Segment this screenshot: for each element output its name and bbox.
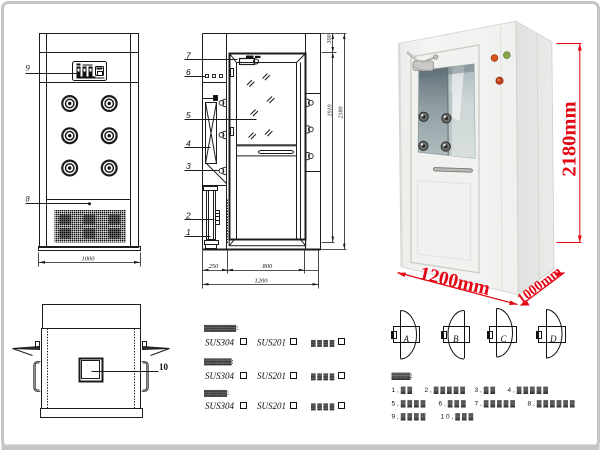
svg-text:10: 10 [159, 362, 169, 372]
svg-text:SUS201: SUS201 [257, 401, 286, 411]
svg-text:SUS304: SUS304 [205, 338, 234, 348]
svg-text:5,▓▓▓▓: 5,▓▓▓▓ [392, 400, 428, 408]
svg-text:▓▓▓▓: ▓▓▓▓ [311, 339, 336, 347]
svg-text:6: 6 [186, 67, 191, 77]
svg-text:1: 1 [186, 227, 191, 237]
svg-text:250: 250 [209, 263, 220, 270]
svg-text:▓▓▓▓: ▓▓▓▓ [311, 373, 336, 381]
svg-text:SUS304: SUS304 [205, 371, 234, 381]
svg-text:B: B [453, 334, 459, 344]
svg-text:3: 3 [186, 161, 191, 171]
svg-text:D: D [549, 334, 557, 344]
svg-text:3,▓▓: 3,▓▓ [475, 386, 498, 394]
svg-text:9,▓▓▓▓: 9,▓▓▓▓ [392, 413, 428, 421]
svg-text:300: 300 [327, 35, 333, 45]
svg-text:1000: 1000 [82, 255, 96, 262]
svg-text:▓▓▓▓▓▓▓:: ▓▓▓▓▓▓▓: [204, 324, 238, 332]
svg-text:6,▓▓▓: 6,▓▓▓ [439, 400, 468, 408]
svg-text:A: A [403, 334, 410, 344]
svg-text:▓▓▓▓▓▓:: ▓▓▓▓▓▓: [204, 358, 234, 366]
svg-text:▓▓▓▓: ▓▓▓▓ [311, 403, 336, 411]
svg-text:2180mm: 2180mm [558, 101, 580, 176]
svg-text:1,▓▓: 1,▓▓ [392, 386, 415, 394]
svg-text:5: 5 [186, 110, 191, 120]
svg-text:SUS304: SUS304 [205, 401, 234, 411]
svg-text:1910: 1910 [327, 105, 333, 117]
svg-text:8,▓▓▓▓▓▓: 8,▓▓▓▓▓▓ [528, 400, 577, 408]
svg-text:7: 7 [186, 51, 191, 61]
svg-text:2180: 2180 [339, 107, 345, 119]
svg-text:1200: 1200 [255, 277, 269, 284]
svg-text:SUS201: SUS201 [257, 338, 286, 348]
svg-text:▓▓▓▓:: ▓▓▓▓: [392, 372, 413, 380]
svg-text:2,▓▓▓▓▓: 2,▓▓▓▓▓ [425, 386, 467, 394]
svg-text:7,▓▓▓▓▓: 7,▓▓▓▓▓ [475, 400, 517, 408]
svg-text:10,▓▓▓: 10,▓▓▓ [441, 413, 476, 421]
svg-text:4,▓▓▓▓▓: 4,▓▓▓▓▓ [508, 386, 550, 394]
svg-text:4: 4 [186, 139, 191, 149]
svg-text:2: 2 [185, 211, 191, 221]
svg-text:800: 800 [263, 263, 274, 270]
svg-text:▓▓▓▓▓:: ▓▓▓▓▓: [204, 389, 229, 397]
svg-text:C: C [501, 334, 508, 344]
svg-text:SUS201: SUS201 [257, 371, 286, 381]
